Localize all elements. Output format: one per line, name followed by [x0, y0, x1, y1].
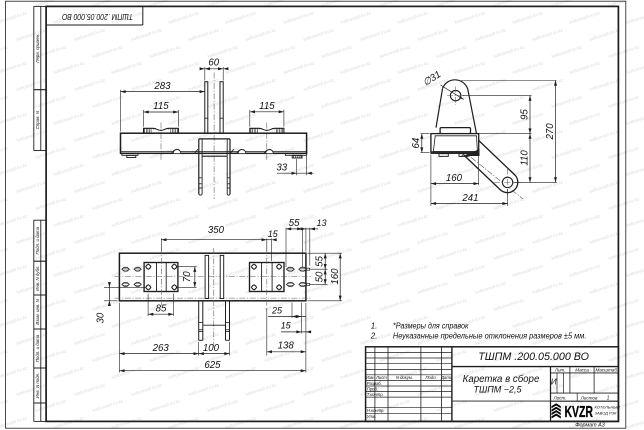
- svg-text:Н.контр.: Н.контр.: [367, 408, 385, 413]
- svg-text:Дата: Дата: [440, 375, 453, 380]
- svg-text:15: 15: [268, 229, 279, 239]
- svg-text:ТШПМ −2,5: ТШПМ −2,5: [473, 384, 522, 394]
- svg-text:Лист.: Лист.: [552, 395, 566, 400]
- svg-text:Лист: Лист: [375, 375, 387, 380]
- svg-text:Разраб.: Разраб.: [367, 381, 382, 386]
- svg-text:1: 1: [607, 395, 610, 401]
- svg-text:350: 350: [208, 225, 225, 236]
- svg-text:Перв. примен.: Перв. примен.: [35, 34, 40, 63]
- svg-text:2.: 2.: [370, 332, 378, 341]
- svg-text:Справ. N: Справ. N: [35, 110, 40, 129]
- svg-text:263: 263: [152, 343, 170, 354]
- svg-text:Подп. и дата: Подп. и дата: [35, 334, 40, 362]
- svg-text:ТШПМ .200.05.000 ВО: ТШПМ .200.05.000 ВО: [62, 12, 133, 21]
- svg-text:Неуказанные предельные отклоне: Неуказанные предельные отклонения размер…: [393, 332, 587, 341]
- svg-text:Масштаб: Масштаб: [595, 367, 617, 372]
- svg-text:33: 33: [276, 163, 287, 174]
- svg-text:Подп. и дата: Подп. и дата: [35, 226, 40, 254]
- svg-text:ЗАВОД РЗК: ЗАВОД РЗК: [595, 411, 618, 416]
- svg-text:85: 85: [156, 303, 167, 314]
- svg-text:Подп.: Подп.: [426, 375, 437, 380]
- svg-text:1.: 1.: [371, 321, 378, 330]
- svg-text:100: 100: [203, 343, 220, 354]
- svg-text:625: 625: [204, 360, 221, 371]
- svg-text:55: 55: [315, 256, 326, 267]
- svg-text:Изм.: Изм.: [366, 375, 375, 380]
- svg-text:15: 15: [281, 320, 292, 330]
- svg-text:KVZR: KVZR: [565, 404, 594, 421]
- svg-text:Листов: Листов: [580, 395, 598, 400]
- svg-text:115: 115: [153, 101, 169, 112]
- svg-text:КОТЕЛЬНЫЙ: КОТЕЛЬНЫЙ: [595, 405, 620, 410]
- svg-text:Утв.: Утв.: [367, 414, 377, 419]
- svg-text:Формат А3: Формат А3: [575, 422, 605, 428]
- svg-text:50: 50: [315, 271, 326, 282]
- svg-text:25: 25: [271, 306, 283, 316]
- svg-text:*Размеры для справок: *Размеры для справок: [393, 321, 470, 330]
- svg-text:И: И: [551, 378, 557, 387]
- svg-text:60: 60: [208, 58, 219, 69]
- svg-text:64: 64: [411, 137, 422, 148]
- svg-text:Проб.: Проб.: [367, 387, 378, 392]
- svg-text:Взам. инв. N: Взам. инв. N: [35, 298, 40, 324]
- svg-text:115: 115: [259, 101, 275, 112]
- svg-text:95: 95: [519, 109, 530, 120]
- svg-text:283: 283: [153, 81, 171, 92]
- svg-text:N докум.: N докум.: [396, 375, 413, 380]
- svg-text:Лит.: Лит.: [554, 367, 566, 372]
- svg-text:30: 30: [96, 312, 107, 323]
- svg-text:110: 110: [519, 150, 530, 166]
- svg-text:160: 160: [446, 173, 463, 184]
- svg-text:241: 241: [461, 193, 478, 204]
- svg-text:138: 138: [278, 340, 295, 351]
- svg-text:13: 13: [316, 218, 326, 228]
- svg-text:70: 70: [182, 271, 193, 282]
- svg-text:55: 55: [289, 218, 300, 229]
- svg-text:Т.контр.: Т.контр.: [367, 392, 384, 397]
- svg-text:270: 270: [545, 123, 556, 141]
- svg-text:Масса: Масса: [575, 367, 589, 372]
- svg-text:Инв. N подл.: Инв. N подл.: [35, 373, 40, 399]
- svg-text:Инв. N дубл.: Инв. N дубл.: [35, 265, 40, 290]
- svg-text:ТШПМ .200.05.000 ВО: ТШПМ .200.05.000 ВО: [478, 351, 589, 363]
- svg-text:160: 160: [330, 268, 341, 285]
